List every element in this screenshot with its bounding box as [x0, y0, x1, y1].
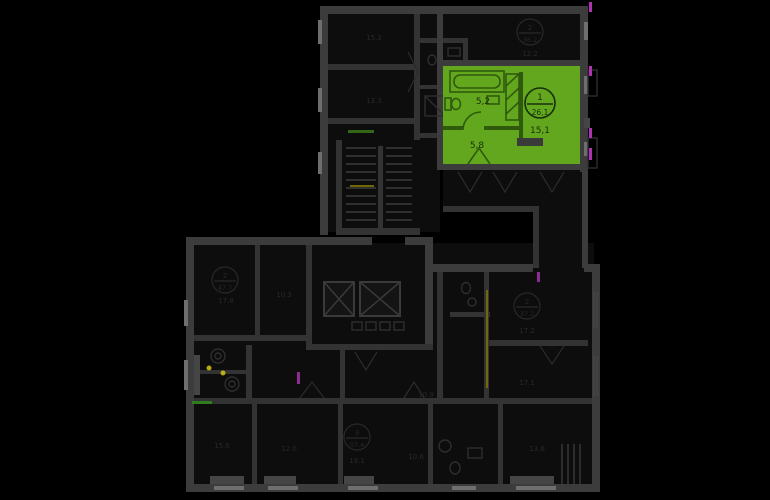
apartment-total-area: 37.2 — [520, 310, 534, 318]
apartment-total-area: 26,1 — [532, 108, 549, 117]
apartment-total-area: 47.7 — [218, 284, 232, 292]
partition-wall — [443, 126, 463, 130]
partition-wall — [484, 126, 523, 130]
apartment-number: 1 — [537, 93, 543, 103]
apartment-total-area: 57.4 — [350, 441, 364, 449]
room-area-label: 15.2 — [366, 34, 382, 42]
room-area-label: 10.6 — [408, 453, 424, 461]
room-area-label: 15.6 — [214, 442, 230, 450]
room-area-label: 19.1 — [349, 457, 365, 465]
floor-plan: 5,2 5,8 15,1 1 26,1 — [0, 0, 770, 500]
floor-plan-canvas: 5,2 5,8 15,1 1 26,1 — [0, 0, 770, 500]
green-accent-line — [192, 401, 212, 404]
apartment-total-area: 36.2 — [523, 36, 537, 44]
room-area-label: 13.6 — [529, 445, 545, 453]
room-area-label: 5,8 — [470, 141, 485, 151]
apartment-number: 2 — [528, 24, 532, 32]
apartment-number: 2 — [223, 272, 227, 280]
apartment-1-highlighted[interactable]: 5,2 5,8 15,1 1 26,1 — [443, 66, 580, 164]
room-area-label: 13.3 — [366, 97, 382, 105]
room-area-label: 17.8 — [218, 297, 234, 305]
apartment-number: 2 — [525, 298, 529, 306]
room-area-label: 5,2 — [476, 97, 490, 107]
apartment-number: 3 — [355, 429, 359, 437]
room-area-label: 15,1 — [530, 126, 550, 136]
room-area-label: 10.9 — [418, 391, 434, 399]
stove-burner-dot — [207, 366, 212, 371]
stove-burner-dot — [221, 371, 226, 376]
windowsill — [517, 138, 543, 146]
utility-line — [486, 290, 488, 388]
room-area-label: 10.3 — [276, 291, 292, 299]
room-area-label: 12.0 — [281, 445, 297, 453]
room-area-label: 17.2 — [519, 327, 535, 335]
room-area-label: 17.1 — [519, 379, 535, 387]
room-area-label: 12.2 — [522, 50, 538, 58]
